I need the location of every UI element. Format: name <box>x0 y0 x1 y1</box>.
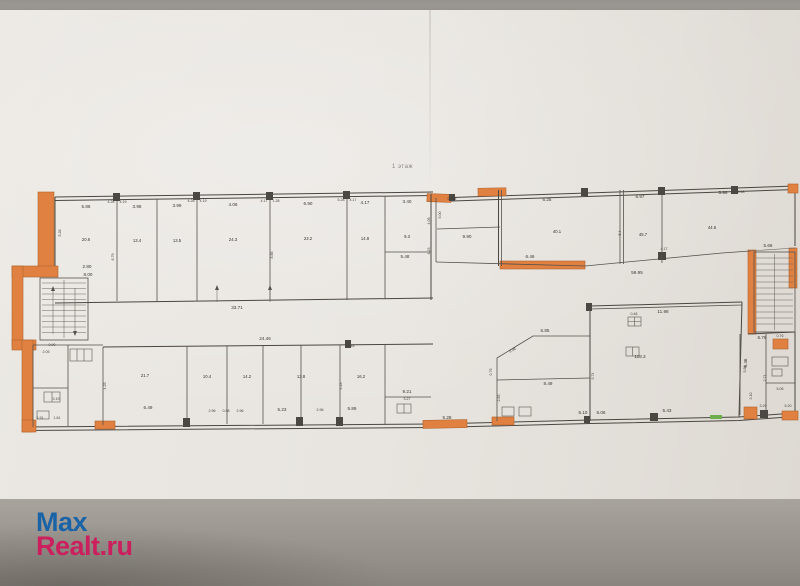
dim-label: 3.40 <box>403 199 412 204</box>
dim-label: 8.00 <box>84 272 93 277</box>
dim-label: 59.95 <box>631 270 643 275</box>
dim-label: 4.05 <box>427 218 431 225</box>
dim-label: 5.20 <box>785 404 792 408</box>
area-label: 20.6 <box>82 237 91 242</box>
dim-label: 2.05 <box>43 350 50 354</box>
dim-label: 4.17 <box>261 199 268 203</box>
dim-label: 8.49 <box>544 381 553 386</box>
dim-label: 5.00 <box>438 212 442 219</box>
dim-label: 5.23 <box>278 407 287 412</box>
dim-label: 5.74 <box>591 373 595 380</box>
area-label: 23.2 <box>304 236 313 241</box>
dim-label: 4.17 <box>361 200 370 205</box>
area-label: 13.5 <box>173 238 182 243</box>
dim-label: 4.17 <box>661 247 668 251</box>
dim-label: 5.10 <box>579 410 588 415</box>
bottom-left-rooms <box>103 340 433 427</box>
area-label: 14.8 <box>361 236 370 241</box>
area-label: 45.7 <box>639 232 648 237</box>
area-label: 44.6 <box>708 225 717 230</box>
dim-label: 5.89 <box>348 406 357 411</box>
dim-label: 6.49 <box>144 405 153 410</box>
floor-plan-drawing: 5.86 3.98 3.99 4.06 6.90 4.17 3.40 4.28 … <box>0 0 800 500</box>
highlighted-walls <box>12 184 798 432</box>
dim-label: 3.98 <box>133 204 142 209</box>
dim-label: 8.86 <box>270 252 274 259</box>
dim-label: 3.19 <box>53 397 60 401</box>
dim-label: 2.96 <box>209 409 216 413</box>
dim-label: 6.76 <box>758 335 767 340</box>
green-mark <box>710 415 722 419</box>
dim-label: 0.90 <box>49 343 56 347</box>
dim-label: 4.06 <box>229 202 238 207</box>
dim-label: 4.17 <box>350 198 357 202</box>
dim-label: 3.99 <box>173 203 182 208</box>
dim-label: 2.96 <box>237 409 244 413</box>
dim-label: 6.90 <box>304 201 313 206</box>
dim-label: 1.61 <box>54 416 61 420</box>
dim-label: 5.48 <box>738 190 745 194</box>
dim-label: 4.25 <box>103 383 107 390</box>
dim-label: 3.27 <box>404 397 411 401</box>
dim-label: 2.71 <box>763 375 767 382</box>
dim-label: 1.91 <box>37 416 44 420</box>
dim-label: 4.23 <box>427 248 431 255</box>
dim-label: 5.96 <box>719 190 728 195</box>
area-label: 40.1 <box>553 229 562 234</box>
dim-label: 33.71 <box>231 305 243 310</box>
area-label: 16.2 <box>357 374 366 379</box>
dim-label: 3.10 <box>749 393 753 400</box>
area-label: 14.2 <box>243 374 252 379</box>
dim-label: 5.48 <box>401 254 410 259</box>
dim-label: 6.97 <box>636 194 645 199</box>
area-label: 118.3 <box>634 354 646 359</box>
middle-connector <box>436 190 795 266</box>
left-staircase <box>40 278 88 340</box>
dim-label: 9.21 <box>403 389 412 394</box>
dim-label: 0.98 <box>223 409 230 413</box>
wc-rooms <box>33 345 103 427</box>
area-label: 10.4 <box>203 374 212 379</box>
dim-label: 5.06 <box>777 387 784 391</box>
area-label: 21.7 <box>141 373 150 378</box>
dim-label: 8.79 <box>111 254 115 261</box>
dim-label: 0.75 <box>489 369 493 376</box>
floor-title: 1 этаж <box>392 164 413 170</box>
dim-label: 6.85 <box>541 328 550 333</box>
top-left-rooms <box>55 191 433 303</box>
dim-label: 0.46 <box>631 312 638 316</box>
area-label: 9.3 <box>404 234 410 239</box>
dim-label: 1.28 <box>273 199 280 203</box>
dim-label: 4.28 <box>188 199 195 203</box>
dim-label: 4.23 <box>339 383 343 390</box>
photo-background: 5.86 3.98 3.99 4.06 6.90 4.17 3.40 4.28 … <box>0 0 800 586</box>
dimension-labels: 5.86 3.98 3.99 4.06 6.90 4.17 3.40 4.28 … <box>37 190 792 420</box>
dim-label: 9.90 <box>463 234 472 239</box>
dim-label: 5.86 <box>743 366 747 373</box>
dim-label: 6.46 <box>526 254 535 259</box>
dim-label: 0.99 <box>448 196 457 201</box>
big-room <box>586 302 742 421</box>
dim-label: 0.76 <box>777 334 784 338</box>
dim-label: 24.46 <box>259 336 271 341</box>
dim-label: 5.66 <box>764 243 773 248</box>
dim-label: 11.98 <box>657 309 669 314</box>
dim-label: 4.28 <box>108 200 115 204</box>
dim-label: 4.19 <box>200 199 207 203</box>
dim-label: 0.48 <box>348 344 355 348</box>
dim-label: 2.96 <box>317 408 324 412</box>
dim-label: 5.28 <box>338 198 345 202</box>
dim-label: 5.86 <box>82 204 91 209</box>
watermark-line2: Realt.ru <box>36 533 133 560</box>
dim-label: 5.28 <box>58 230 62 237</box>
dim-label: 4.19 <box>120 200 127 204</box>
area-label: 13.4 <box>133 238 142 243</box>
dim-label: 5.4 <box>618 231 622 236</box>
dim-label: 2.80 <box>83 264 92 269</box>
dim-label: 2.83 <box>497 395 501 402</box>
area-label: 24.3 <box>229 237 238 242</box>
dim-label: 6.25 <box>543 197 552 202</box>
dim-label: 5.43 <box>663 408 672 413</box>
dim-label: 5.98 <box>509 347 517 354</box>
dim-label: 5.06 <box>597 410 606 415</box>
dim-label: 5.28 <box>443 415 452 420</box>
area-label: 13.8 <box>297 374 306 379</box>
dim-label: 3.29 <box>760 404 767 408</box>
maxrealt-watermark: Max Realt.ru <box>36 509 133 560</box>
